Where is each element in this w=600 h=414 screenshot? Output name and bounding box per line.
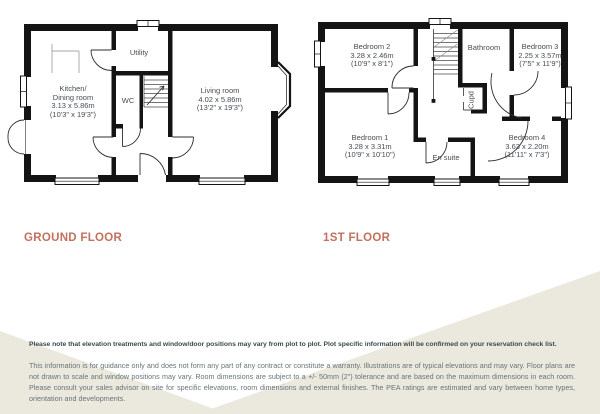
room-label-bathroom: Bathroom [468,44,501,53]
room-label-bedroom2: Bedroom 2 3.28 x 2.46m (10'9" x 8'1") [350,43,393,69]
first-floor-plan [300,0,600,205]
ff-window-bottom-bed4 [499,179,529,186]
room-label-kitchen: Kitchen/ Dining room 3.13 x 5.86m (10'3"… [50,85,96,119]
disclaimer-body: This information is for guidance only an… [29,360,575,404]
room-name: Cupd [467,91,476,109]
ff-window-right [566,87,572,119]
gf-window-top [137,21,159,27]
ground-floor-plan [0,0,300,205]
room-label-ensuite: En suite [432,154,459,163]
ff-window-top [429,19,451,25]
room-label-bedroom1: Bedroom 1 3.28 x 3.31m (10'9" x 10'10") [345,134,395,160]
ff-window-left [315,41,321,67]
room-name: En suite [432,154,459,163]
room-name: Bathroom [468,44,501,53]
room-label-bedroom3: Bedroom 3 2.25 x 3.57m (7'5" x 11'9") [518,43,561,69]
ground-floor-title: GROUND FLOOR [24,232,122,244]
room-dims-imperial: (10'3" x 19'3") [50,111,96,120]
room-dims-imperial: (11'11" x 7'3") [504,151,549,160]
room-label-wc: WC [122,97,135,106]
room-name: Utility [130,49,148,58]
gf-window-bottom-kitchen [55,178,99,185]
gf-bay-window [278,62,290,118]
room-label-cupboard: Cupd [467,91,476,109]
room-dims-imperial: (13'2" x 19'3") [197,104,243,113]
room-dims-imperial: (10'9" x 8'1") [350,60,393,69]
first-floor-title: 1ST FLOOR [323,232,390,244]
room-label-living-room: Living room 4.02 x 5.86m (13'2" x 19'3") [197,87,243,113]
room-name: WC [122,97,135,106]
floorplan-page: Kitchen/ Dining room 3.13 x 5.86m (10'3"… [0,0,600,414]
room-dims-imperial: (7'5" x 11'9") [518,60,561,69]
disclaimer-note: Please note that elevation treatments an… [29,341,595,348]
ff-window-bottom-ensuite [434,179,460,186]
ff-window-bottom-bed1 [357,179,389,186]
gf-window-left [21,76,27,107]
room-label-utility: Utility [130,49,148,58]
room-label-bedroom4: Bedroom 4 3.63 x 2.20m (11'11" x 7'3") [504,134,549,160]
gf-french-door [8,120,26,154]
gf-window-bottom-living [199,178,245,185]
room-dims-imperial: (10'9" x 10'10") [345,151,395,160]
